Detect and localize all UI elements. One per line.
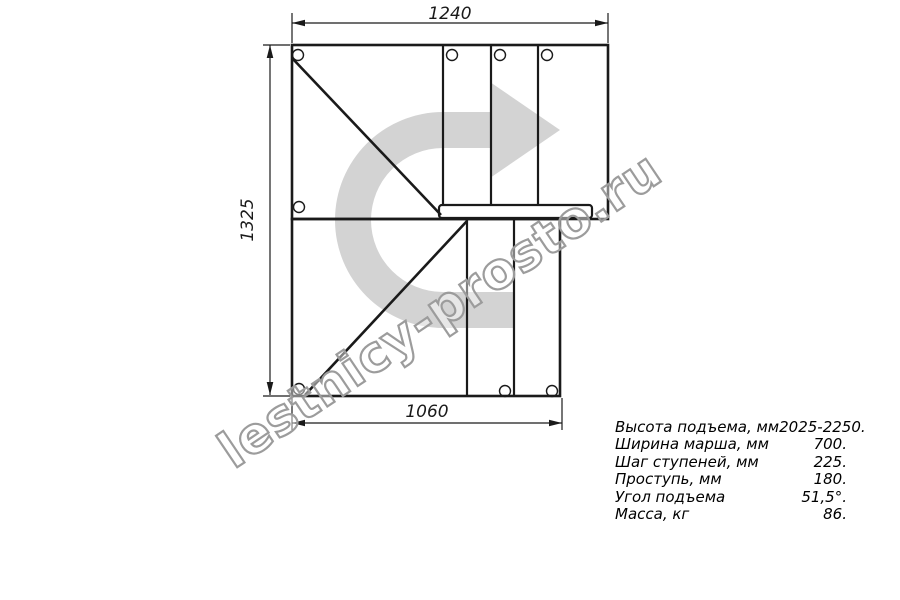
spec-value: 86. — [823, 506, 847, 523]
spec-row: Высота подъема, мм 2025-2250. — [615, 419, 847, 436]
spec-value: 180. — [814, 471, 847, 488]
spec-row: Проступь, мм 180. — [615, 471, 847, 488]
spec-value: 2025-2250. — [779, 419, 866, 436]
dim-arrow-icon — [595, 20, 608, 27]
spec-label: Высота подъема, мм — [615, 419, 779, 436]
spec-row: Угол подъема 51,5°. — [615, 489, 847, 506]
left-dimension: 1325 — [238, 45, 290, 396]
post-hole-icon — [447, 50, 458, 61]
spec-value: 700. — [814, 436, 847, 453]
left-dimension-value: 1325 — [238, 198, 258, 241]
site-watermark-text: lestnicy-prosto.ru — [208, 140, 672, 479]
dim-arrow-icon — [267, 45, 274, 58]
spec-label: Масса, кг — [615, 506, 689, 523]
spec-row: Ширина марша, мм 700. — [615, 436, 847, 453]
dim-arrow-icon — [292, 20, 305, 27]
spec-value: 225. — [814, 454, 847, 471]
spec-label: Ширина марша, мм — [615, 436, 769, 453]
top-dimension-value: 1240 — [428, 4, 471, 24]
spec-label: Проступь, мм — [615, 471, 722, 488]
post-hole-icon — [293, 50, 304, 61]
bottom-dimension-value: 1060 — [405, 402, 448, 422]
spec-label: Угол подъема — [615, 489, 725, 506]
post-hole-icon — [495, 50, 506, 61]
spec-table: Высота подъема, мм 2025-2250. Ширина мар… — [615, 419, 847, 523]
spec-row: Шаг ступеней, мм 225. — [615, 454, 847, 471]
top-dimension: 1240 — [292, 4, 608, 43]
spec-row: Масса, кг 86. — [615, 506, 847, 523]
staircase-drawing-page: 1240 1325 1060 lestnicy-prosto.ru Высота… — [0, 0, 900, 600]
spec-value: 51,5°. — [801, 489, 847, 506]
dim-arrow-icon — [549, 420, 562, 427]
post-hole-icon — [294, 202, 305, 213]
post-hole-icon — [542, 50, 553, 61]
spec-label: Шаг ступеней, мм — [615, 454, 759, 471]
